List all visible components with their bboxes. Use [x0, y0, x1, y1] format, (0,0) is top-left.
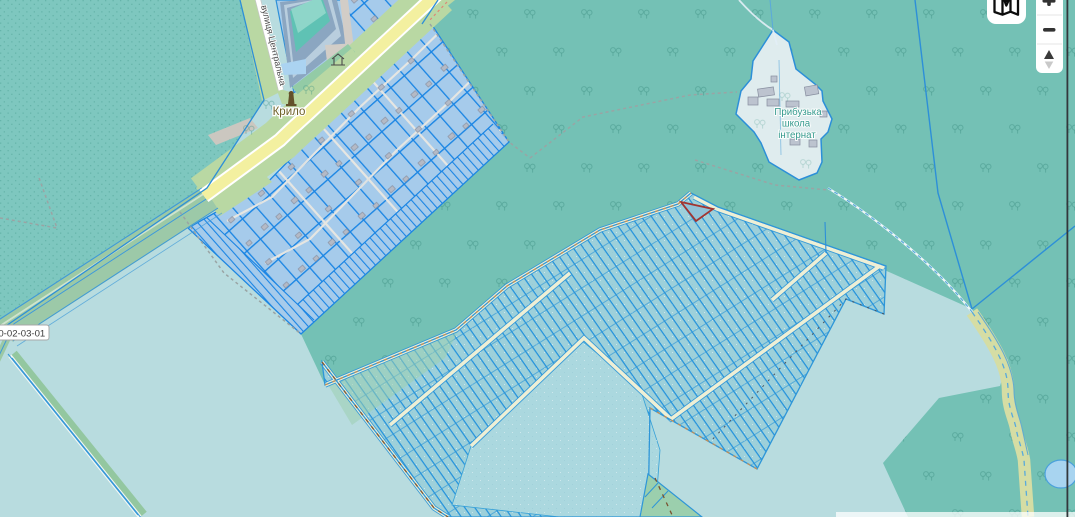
svg-text:школа: школа — [782, 119, 811, 130]
svg-text:інтернат: інтернат — [778, 130, 816, 141]
svg-text:Крило: Крило — [273, 106, 306, 118]
svg-text:Прибузька: Прибузька — [774, 107, 822, 118]
svg-text:30-02-03-01: 30-02-03-01 — [0, 329, 45, 340]
